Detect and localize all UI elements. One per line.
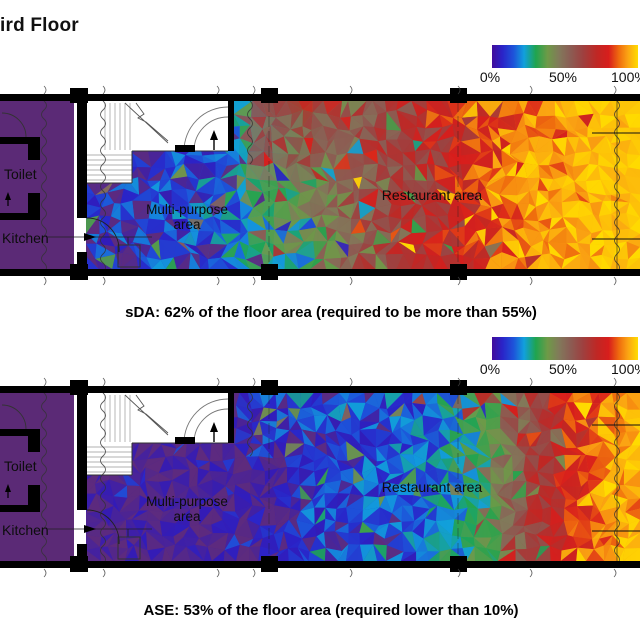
room-label-kitchen: Kitchen <box>2 522 49 538</box>
room-label-multipurpose: Multi-purpose area <box>136 202 238 232</box>
room-label-multipurpose: Multi-purpose area <box>136 494 238 524</box>
caption-ase: ASE: 53% of the floor area (required low… <box>0 602 640 619</box>
floorplan-drawing-ase <box>0 373 640 585</box>
colorbar-gradient <box>492 337 638 360</box>
floorplan-sda: Toilet Kitchen Multi-purpose area Restau… <box>0 93 640 278</box>
floorplan-ase: Toilet Kitchen Multi-purpose area Restau… <box>0 385 640 570</box>
figure-title: ird Floor <box>0 15 79 37</box>
room-label-toilet: Toilet <box>4 458 37 474</box>
caption-sda: sDA: 62% of the floor area (required to … <box>0 304 640 321</box>
daylight-figure: ird Floor 0% 50% 100% Toilet Kitchen Mul… <box>0 0 640 640</box>
colorbar-gradient <box>492 45 638 68</box>
floorplan-drawing-sda <box>0 81 640 293</box>
room-label-toilet: Toilet <box>4 166 37 182</box>
room-label-restaurant: Restaurant area <box>382 479 482 495</box>
room-label-kitchen: Kitchen <box>2 230 49 246</box>
room-label-restaurant: Restaurant area <box>382 187 482 203</box>
